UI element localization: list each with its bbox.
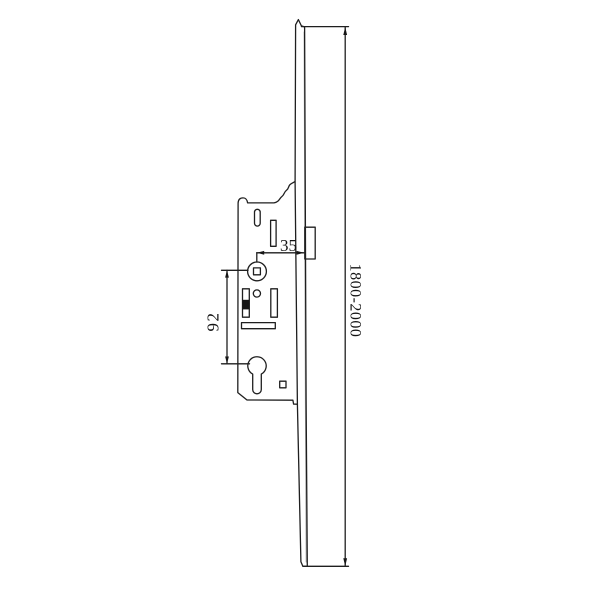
arrow-centers-up	[225, 270, 229, 277]
lock-case-outline	[238, 182, 297, 405]
drawing-canvas: 35 92 1800-2000	[0, 0, 600, 600]
dim-backset-label: 35	[280, 236, 297, 255]
horizontal-bar-slot	[242, 323, 276, 329]
slider-dark-block	[243, 300, 250, 310]
multipoint-lock-profile-drawing: 35 92 1800-2000	[0, 0, 600, 600]
arrow-backset-left	[257, 251, 264, 255]
arrow-backset-right	[297, 251, 304, 255]
fixing-square-hole	[280, 381, 286, 388]
upper-rect-slot	[271, 220, 277, 246]
dim-length-label: 1800-2000	[347, 264, 364, 338]
arrow-length-down	[343, 558, 347, 566]
pin-hole	[253, 290, 260, 297]
side-rect-slot	[271, 289, 278, 317]
follower-hole	[248, 262, 267, 281]
follower-square-hole	[254, 268, 261, 275]
euro-cylinder-hole	[248, 357, 266, 394]
arrow-length-up	[343, 27, 347, 35]
screw-slot	[255, 209, 261, 226]
dim-centers-label: 92	[204, 312, 223, 332]
latch-bolt	[305, 227, 315, 259]
arrow-centers-down	[225, 357, 229, 364]
